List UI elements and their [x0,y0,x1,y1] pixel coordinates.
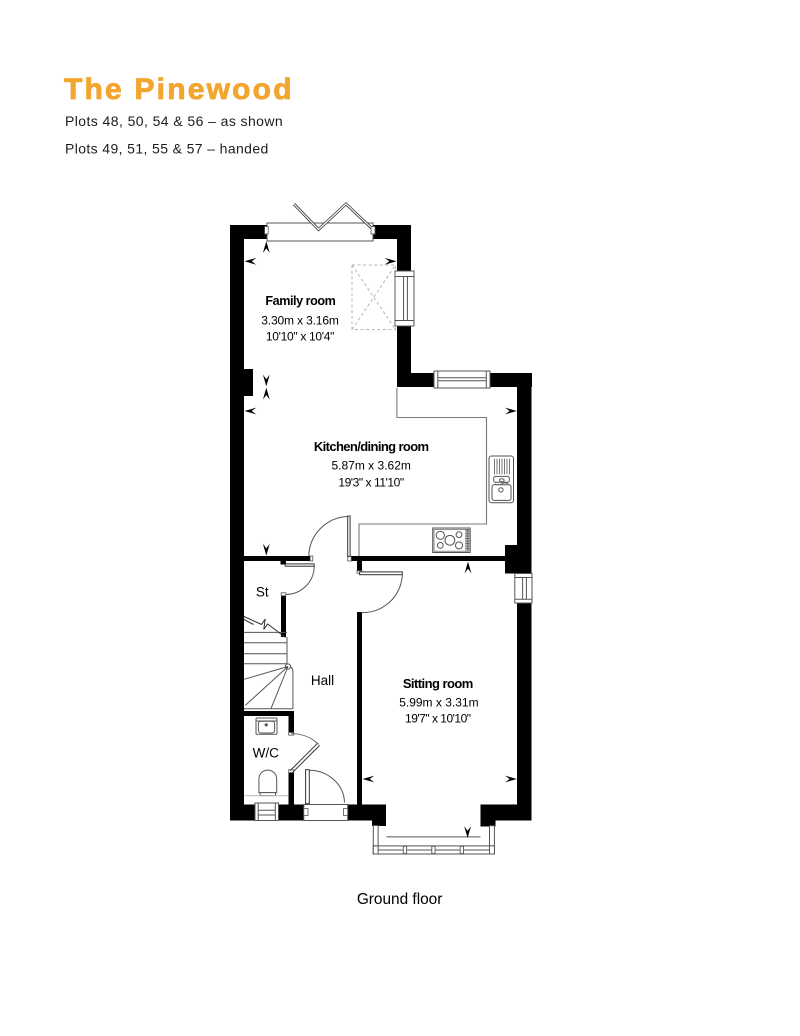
svg-text:Kitchen/dining room: Kitchen/dining room [314,439,429,454]
svg-text:10'10" x 10'4": 10'10" x 10'4" [266,330,334,344]
svg-text:St: St [256,584,269,599]
svg-text:Sitting room: Sitting room [403,676,473,691]
svg-text:5.87m x 3.62m: 5.87m x 3.62m [332,459,411,473]
svg-text:Ground floor: Ground floor [357,891,443,908]
svg-text:The Pinewood: The Pinewood [64,73,294,106]
svg-text:W/C: W/C [253,745,279,760]
svg-text:Hall: Hall [311,673,334,688]
svg-text:Family room: Family room [265,294,335,308]
svg-text:5.99m x 3.31m: 5.99m x 3.31m [399,696,478,710]
svg-text:19'3" x 11'10": 19'3" x 11'10" [338,476,403,490]
svg-text:3.30m x 3.16m: 3.30m x 3.16m [261,313,339,327]
svg-text:Plots 49, 51, 55 & 57 – handed: Plots 49, 51, 55 & 57 – handed [65,141,269,157]
svg-text:Plots 48, 50, 54 & 56 – as sho: Plots 48, 50, 54 & 56 – as shown [65,113,283,129]
svg-text:19'7" x 10'10": 19'7" x 10'10" [405,711,471,725]
